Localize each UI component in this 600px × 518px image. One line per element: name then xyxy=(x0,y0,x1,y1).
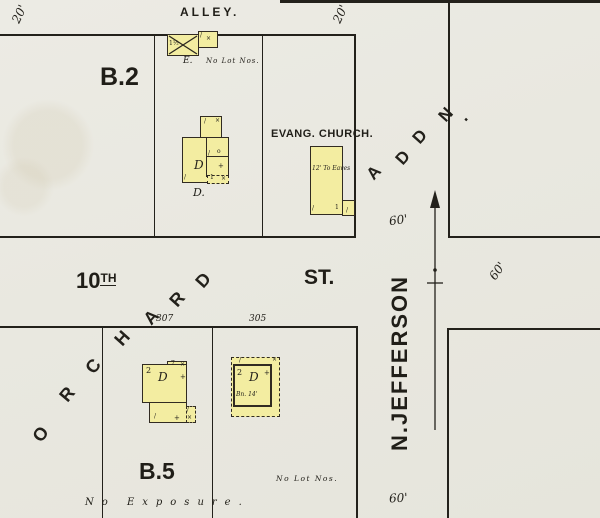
no-lot-numbers-note-top: No Lot Nos. xyxy=(206,57,260,65)
building-mark: × xyxy=(180,362,185,368)
tenth-street-number: 10 xyxy=(76,268,100,293)
tenth-street-label: 10TH xyxy=(76,268,116,294)
building-mark: 1 xyxy=(335,205,339,211)
block-b2-label: B.2 xyxy=(100,63,139,92)
building-d-class-label: D. xyxy=(193,186,205,199)
building-mark: 1½ xyxy=(169,41,179,47)
jefferson-street-label: N.JEFFERSON xyxy=(387,273,413,453)
building-mark: × xyxy=(272,357,277,363)
building-mark: / xyxy=(184,175,186,181)
building-mark: + xyxy=(174,415,180,422)
building-mark: / xyxy=(208,151,210,157)
map-linework-overlay xyxy=(0,0,600,518)
building-mark: D xyxy=(158,371,168,383)
building-mark: + xyxy=(180,374,186,381)
building-mark: + xyxy=(264,370,270,377)
building-mark: 2 xyxy=(146,367,151,375)
building-mark: / xyxy=(204,119,206,125)
street-st-label: ST. xyxy=(304,266,334,290)
building-mark: o xyxy=(217,149,221,155)
building-mark: / xyxy=(187,407,189,413)
north-arrow-icon xyxy=(427,190,443,430)
building-mark: / xyxy=(312,206,314,212)
church-eaves-height-note: 12' To Eaves xyxy=(312,165,350,172)
building-mark: Bn. 14' xyxy=(236,392,257,398)
no-lot-numbers-note-bottom: No Lot Nos. xyxy=(276,474,338,483)
no-exposure-note: No Exposure. xyxy=(85,497,250,508)
building-mark: / xyxy=(200,33,202,39)
building-mark: 1 xyxy=(210,175,214,181)
building-mark: + xyxy=(218,163,224,170)
building-mark: × xyxy=(215,118,220,124)
building-mark: / xyxy=(346,208,348,214)
building-mark: / xyxy=(239,358,241,364)
dimension-label: 60' xyxy=(388,212,408,228)
building-mark: × xyxy=(187,415,192,421)
building-mark: / xyxy=(154,414,156,420)
dimension-label: 60' xyxy=(389,491,408,506)
building-mark: 7 xyxy=(171,361,175,367)
building-mark: × xyxy=(206,36,211,42)
house-number-label: 307 xyxy=(156,314,173,324)
building-mark: D xyxy=(249,371,259,383)
building-mark: D xyxy=(194,159,204,171)
building-e-letter-label: E. xyxy=(183,56,192,66)
sanborn-fire-insurance-map: ALLEY. B.2 E. No Lot Nos. EVANG. CHURCH.… xyxy=(0,0,600,518)
alley-street-label: ALLEY. xyxy=(180,5,239,19)
block-b5-label: B.5 xyxy=(139,458,175,485)
tenth-street-suffix: TH xyxy=(100,271,116,286)
building-mark: × xyxy=(221,176,226,182)
church-name-label: EVANG. CHURCH. xyxy=(271,128,373,140)
building-mark: 2 xyxy=(237,369,242,377)
house-number-label: 305 xyxy=(249,314,266,324)
